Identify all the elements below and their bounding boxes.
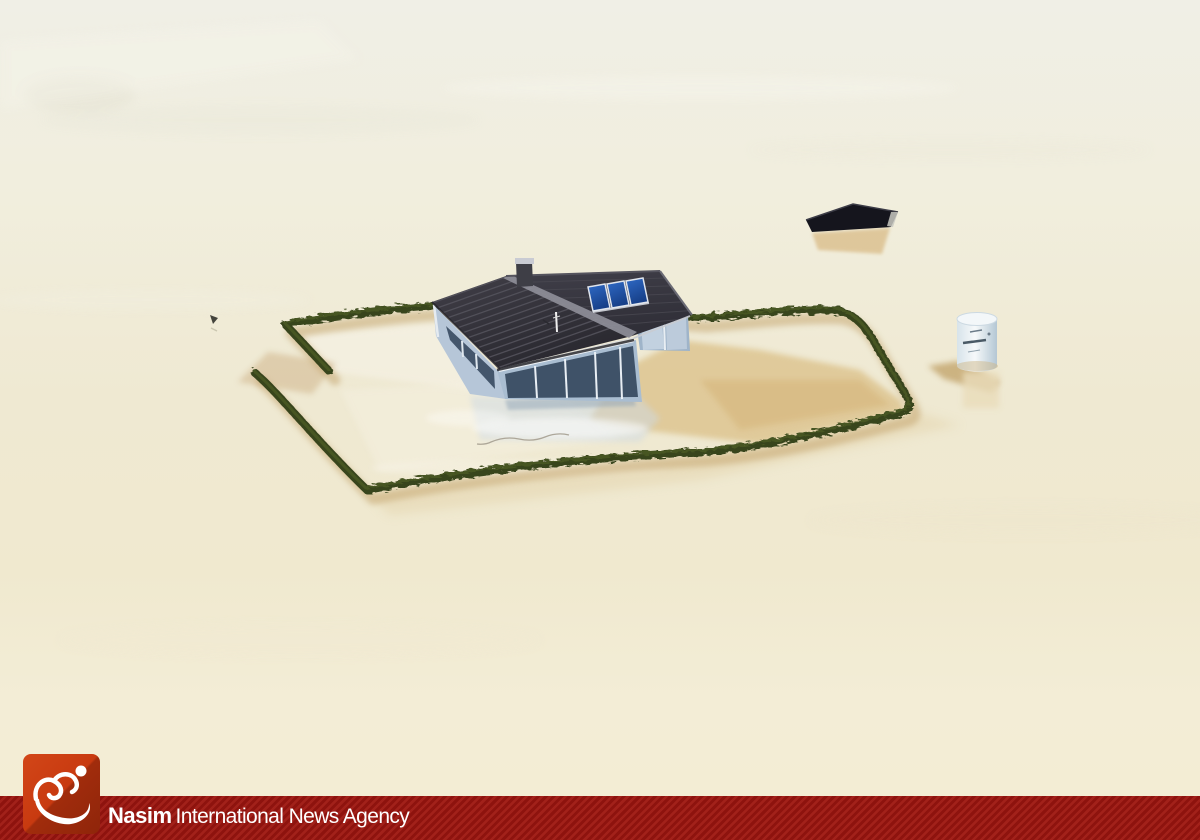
agency-text: International News Agency bbox=[176, 805, 410, 829]
brand-text: Nasim bbox=[108, 803, 172, 829]
footer-band: Nasim International News Agency bbox=[0, 796, 1200, 840]
agency-name: Nasim International News Agency bbox=[108, 803, 409, 829]
news-photo-page: Nasim International News Agency bbox=[0, 0, 1200, 840]
chimney bbox=[515, 258, 534, 287]
flood-aerial-photo bbox=[0, 0, 1200, 796]
nasim-logo bbox=[23, 754, 100, 834]
